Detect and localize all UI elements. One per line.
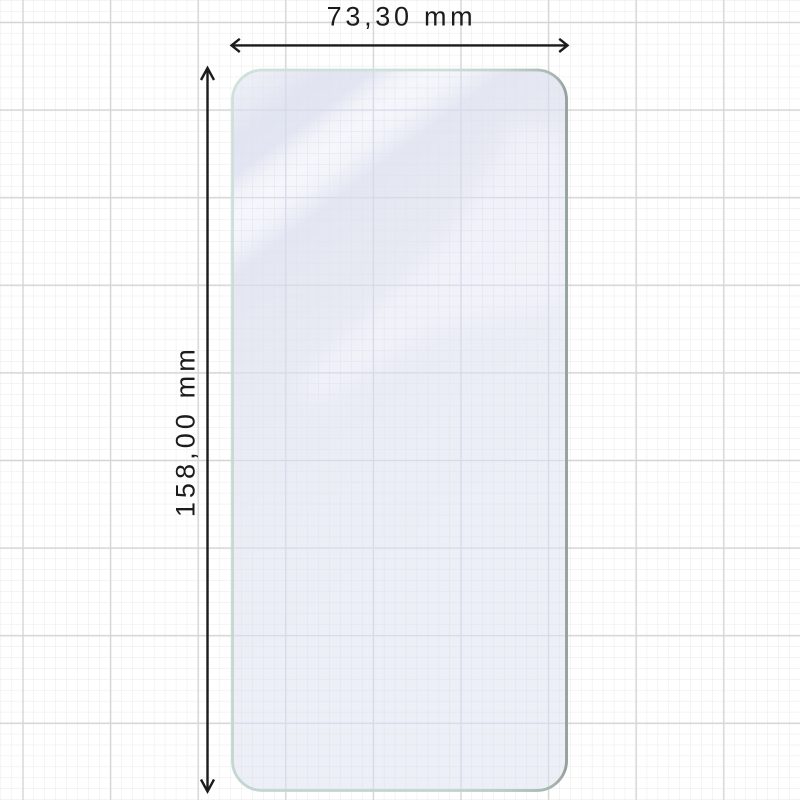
svg-text:73,30 mm: 73,30 mm <box>327 1 477 31</box>
svg-text:158,00 mm: 158,00 mm <box>171 345 201 517</box>
